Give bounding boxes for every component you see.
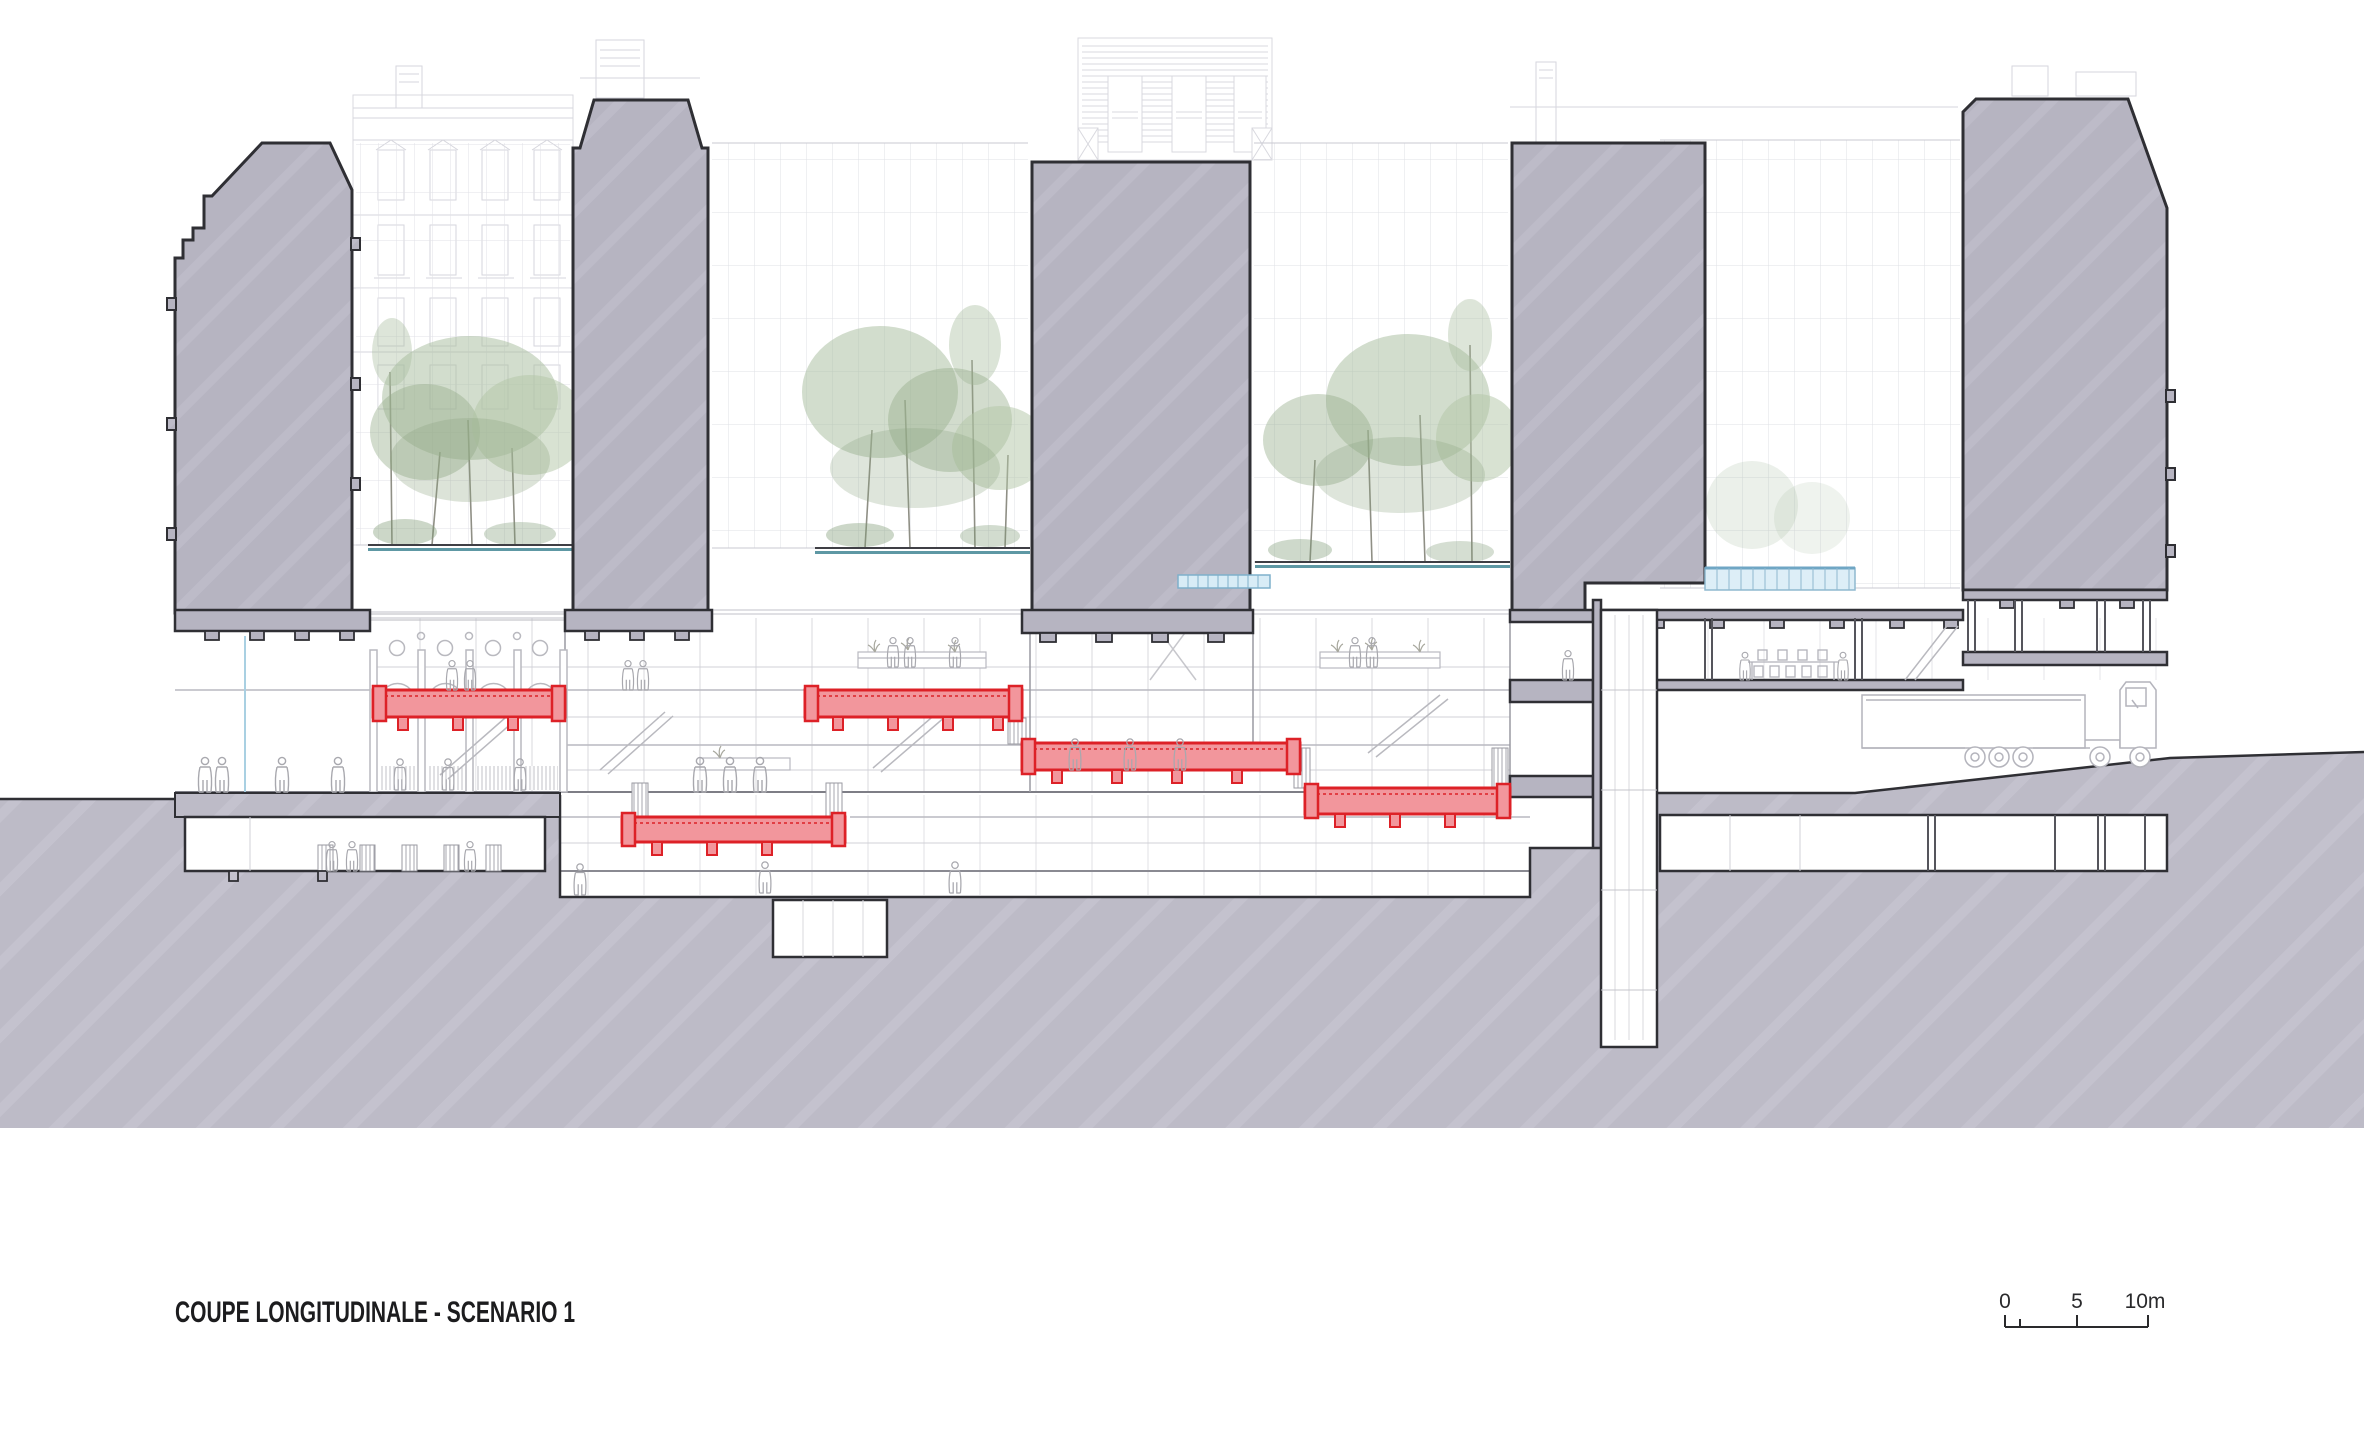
core-elevator-shaft <box>1601 610 1657 1047</box>
scale-label-5: 5 <box>2071 1290 2083 1313</box>
section-drawing: COUPE LONGITUDINALE - SCENARIO 1 0 5 10m <box>0 0 2364 1442</box>
scale-bar: 0 5 10m <box>1999 1290 2165 1327</box>
skylight-glass-roof <box>1705 568 1855 590</box>
left-basement <box>175 793 560 881</box>
building-mass-right-center <box>1512 143 1705 613</box>
building-mass-center <box>1032 162 1250 612</box>
background-penthouse <box>1078 38 1272 160</box>
scale-label-10m: 10m <box>2125 1290 2166 1313</box>
deep-basement-pit <box>773 900 887 957</box>
building-mass-left-mansard <box>175 143 352 613</box>
scale-label-0: 0 <box>1999 1290 2011 1313</box>
drawing-title: COUPE LONGITUDINALE - SCENARIO 1 <box>175 1296 575 1329</box>
architectural-section-sheet: COUPE LONGITUDINALE - SCENARIO 1 0 5 10m <box>0 0 2364 1442</box>
truck <box>1862 682 2156 767</box>
building-mass-second <box>573 100 708 613</box>
glass-canopy-center <box>1178 575 1270 588</box>
building-mass-right-mansard <box>1963 99 2167 590</box>
right-basement-corridor <box>1660 815 2167 871</box>
